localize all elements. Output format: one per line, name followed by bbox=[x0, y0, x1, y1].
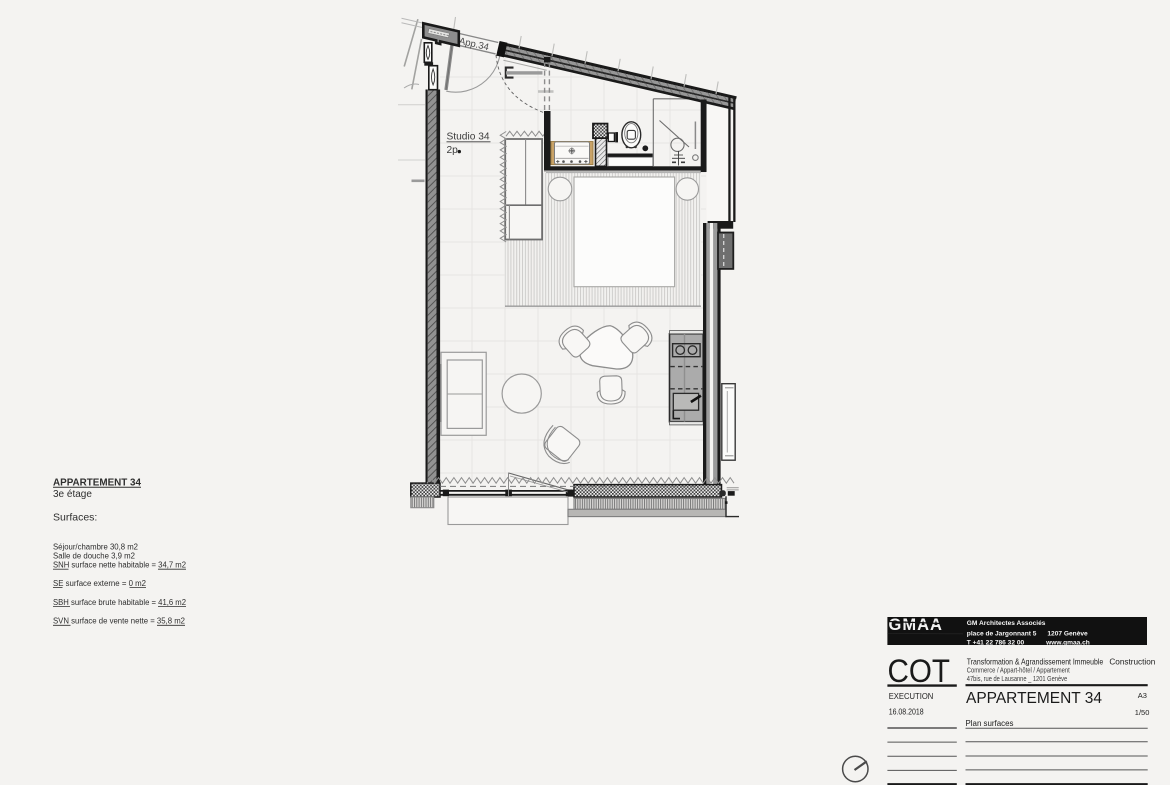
svg-text:A3: A3 bbox=[1138, 691, 1147, 700]
svg-text:T +41 22 786 32 00: T +41 22 786 32 00 bbox=[967, 639, 1025, 646]
svg-text:SBH surface brute habitable =: SBH surface brute habitable = 41,6 m2 bbox=[53, 598, 186, 607]
svg-text:SVN surface de vente nette = 3: SVN surface de vente nette = 35,8 m2 bbox=[53, 617, 185, 626]
svg-text:Séjour/chambre 30,8 m2: Séjour/chambre 30,8 m2 bbox=[53, 542, 138, 551]
svg-text:Surfaces:: Surfaces: bbox=[53, 512, 97, 524]
svg-text:www.gmaa.ch: www.gmaa.ch bbox=[1045, 639, 1090, 646]
svg-text:1207 Genève: 1207 Genève bbox=[1047, 630, 1088, 637]
svg-text:1/50: 1/50 bbox=[1135, 708, 1150, 717]
svg-text:SE surface externe = 0 m2: SE surface externe = 0 m2 bbox=[53, 579, 146, 588]
svg-text:Salle de douche 3,9 m2: Salle de douche 3,9 m2 bbox=[53, 552, 135, 561]
svg-text:APPARTEMENT 34: APPARTEMENT 34 bbox=[53, 477, 141, 488]
svg-text:GMAA: GMAA bbox=[889, 616, 943, 634]
svg-text:place de Jargonnant 5: place de Jargonnant 5 bbox=[967, 630, 1037, 637]
svg-text:APPARTEMENT 34: APPARTEMENT 34 bbox=[966, 690, 1102, 707]
svg-text:47bis, rue de Lausanne _ 1201: 47bis, rue de Lausanne _ 1201 Genève bbox=[967, 674, 1067, 683]
svg-text:3e étage: 3e étage bbox=[53, 489, 92, 500]
svg-text:Plan surfaces: Plan surfaces bbox=[966, 718, 1015, 728]
svg-text:16.08.2018: 16.08.2018 bbox=[889, 708, 924, 717]
svg-text:GM Architectes Associés: GM Architectes Associés bbox=[967, 620, 1046, 627]
svg-text:Studio 34: Studio 34 bbox=[447, 132, 490, 143]
svg-text:Construction: Construction bbox=[1109, 657, 1155, 666]
svg-text:COT: COT bbox=[888, 653, 951, 689]
svg-text:EXECUTION: EXECUTION bbox=[889, 692, 934, 701]
svg-text:2p: 2p bbox=[447, 145, 459, 156]
svg-text:SNH surface nette habitable =: SNH surface nette habitable = 34,7 m2 bbox=[53, 561, 186, 570]
